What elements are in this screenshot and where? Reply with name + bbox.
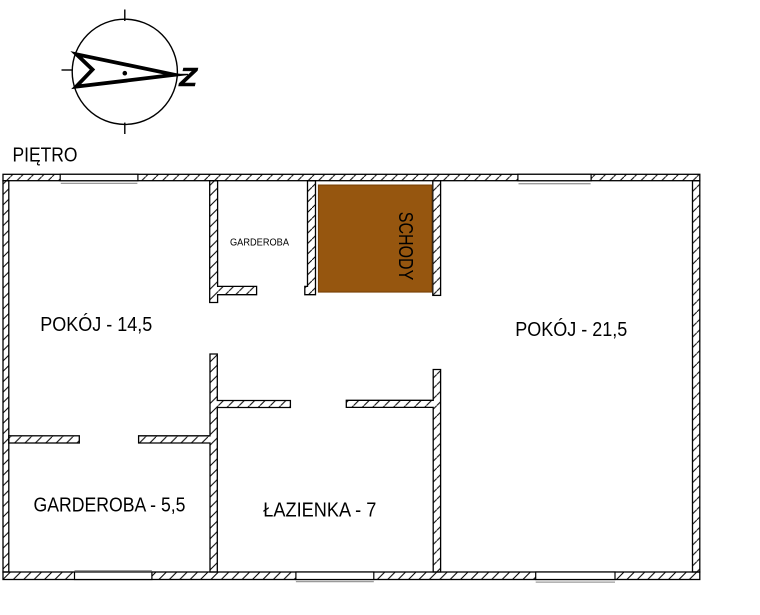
svg-text:GARDEROBA: GARDEROBA bbox=[230, 237, 289, 249]
svg-text:SCHODY: SCHODY bbox=[394, 212, 416, 280]
svg-text:Z: Z bbox=[178, 62, 198, 91]
svg-text:POKÓJ - 14,5: POKÓJ - 14,5 bbox=[40, 313, 152, 336]
svg-text:ŁAZIENKA - 7: ŁAZIENKA - 7 bbox=[263, 500, 376, 522]
svg-text:GARDEROBA - 5,5: GARDEROBA - 5,5 bbox=[34, 495, 186, 517]
svg-text:POKÓJ - 21,5: POKÓJ - 21,5 bbox=[515, 318, 627, 341]
svg-text:PIĘTRO: PIĘTRO bbox=[13, 144, 78, 167]
